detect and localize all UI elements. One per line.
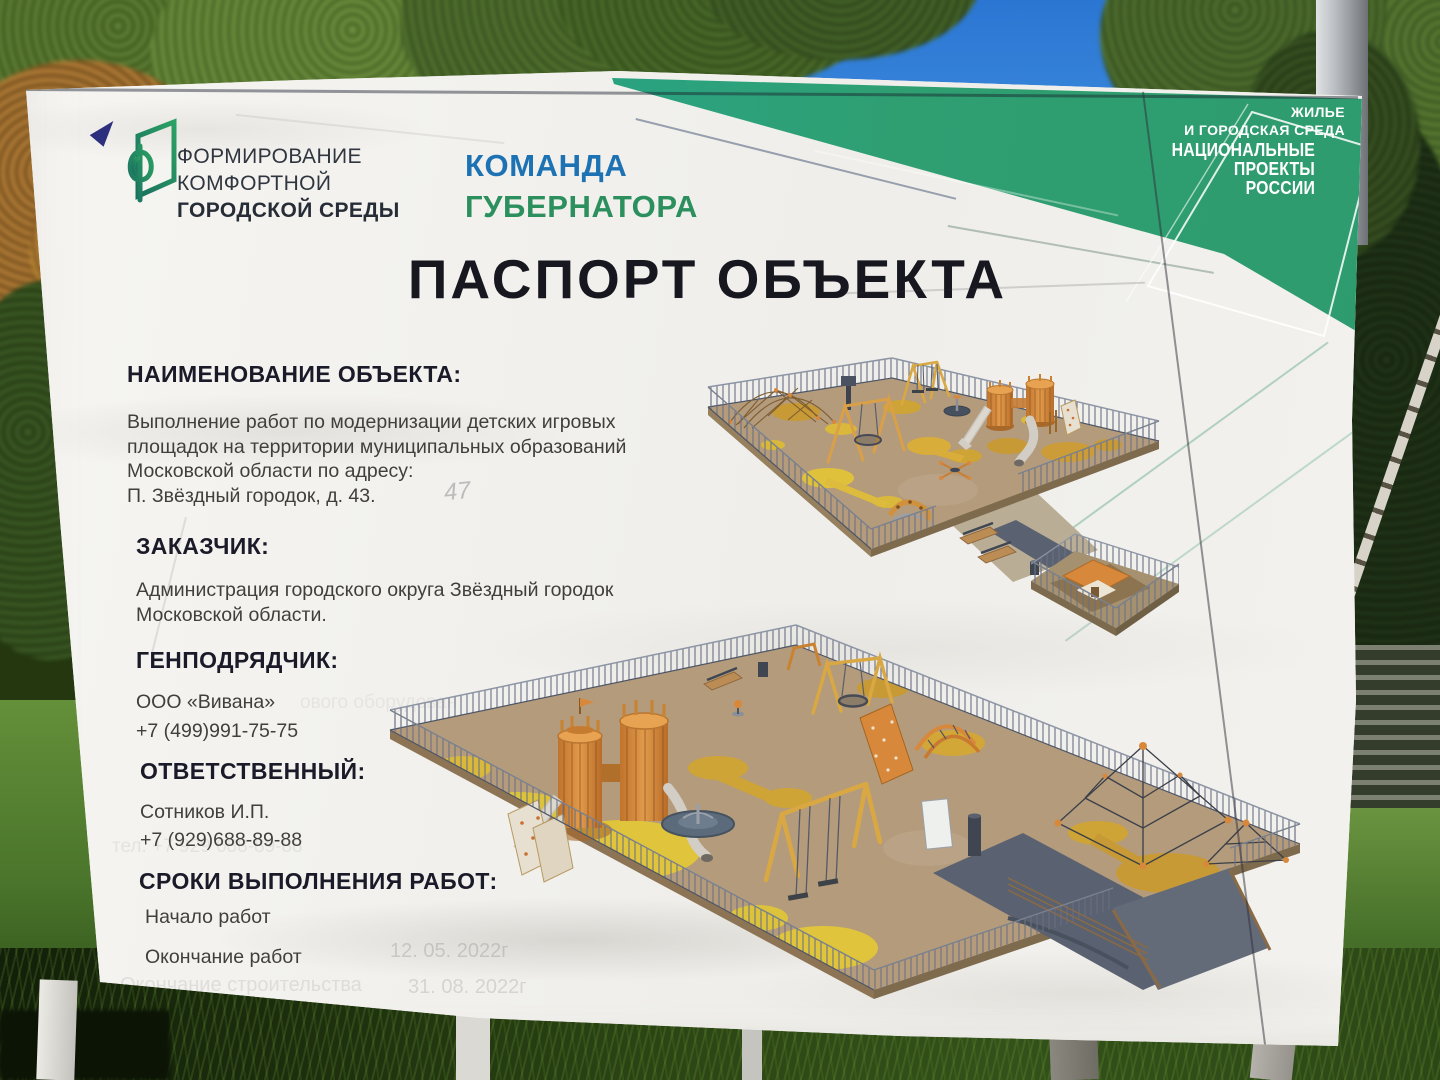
logo-line: ГОРОДСКОЙ СРЕДЫ	[177, 197, 400, 224]
brand-line: РОССИИ	[1111, 179, 1315, 198]
section-body-contractor: ООО «Вивана» +7 (499)991-75-75	[136, 688, 298, 746]
body-line: П. Звёздный городок, д. 43.	[127, 484, 626, 509]
governor-team-lockup: КОМАНДА ГУБЕРНАТОРА	[465, 145, 698, 227]
body-line: площадок на территории муниципальных обр…	[127, 435, 626, 460]
logo-line: ФОРМИРОВАНИЕ	[177, 143, 400, 170]
program-logo-text: ФОРМИРОВАНИЕ КОМФОРТНОЙ ГОРОДСКОЙ СРЕДЫ	[177, 143, 400, 224]
section-body-object-name: Выполнение работ по модернизации детских…	[127, 410, 626, 508]
handwritten-house-number: 47	[443, 477, 472, 508]
shadow-corner	[0, 1010, 170, 1080]
schedule-start-label: Начало работ	[145, 906, 271, 929]
body-line: Администрация городского округа Звёздный…	[136, 578, 613, 603]
body-line: Выполнение работ по модернизации детских…	[127, 410, 626, 435]
sign-leg	[742, 1026, 762, 1080]
sign-leg	[456, 1014, 490, 1080]
section-heading-customer: ЗАКАЗЧИК:	[136, 533, 269, 560]
body-line: Сотников И.П.	[140, 798, 302, 826]
torn-sticker-fragment	[90, 115, 121, 146]
sector-line: И ГОРОДСКАЯ СРЕДА	[1085, 121, 1345, 139]
section-heading-object-name: НАИМЕНОВАНИЕ ОБЪЕКТА:	[127, 361, 461, 388]
playground-render-bottom	[368, 618, 1338, 1036]
section-heading-contractor: ГЕНПОДРЯДЧИК:	[136, 647, 338, 674]
section-heading-responsible: ОТВЕТСТВЕННЫЙ:	[140, 758, 366, 785]
sign-leg	[36, 979, 77, 1080]
brand-line: НАЦИОНАЛЬНЫЕ	[1111, 141, 1315, 160]
fkgs-logo-mark	[118, 118, 180, 213]
body-line: Московской области по адресу:	[127, 459, 626, 484]
schedule-end-label: Окончание работ	[145, 946, 302, 969]
brand-line: ПРОЕКТЫ	[1111, 160, 1315, 179]
page-title: ПАСПОРТ ОБЪЕКТА	[350, 247, 1065, 311]
contractor-phone: +7 (499)991-75-75	[136, 717, 298, 746]
logo-line: КОМФОРТНОЙ	[177, 170, 400, 197]
national-projects-wordmark: НАЦИОНАЛЬНЫЕ ПРОЕКТЫ РОССИИ	[1111, 141, 1315, 198]
park-photo-scene: ФОРМИРОВАНИЕ КОМФОРТНОЙ ГОРОДСКОЙ СРЕДЫ …	[0, 0, 1440, 1080]
construction-passport-billboard: ФОРМИРОВАНИЕ КОМФОРТНОЙ ГОРОДСКОЙ СРЕДЫ …	[0, 0, 1440, 1080]
national-project-sector: ЖИЛЬЕ И ГОРОДСКАЯ СРЕДА	[1085, 103, 1345, 139]
governor-team-line: КОМАНДА	[465, 145, 698, 186]
ghost-phone: тел. +7 929 688-89-88	[112, 836, 303, 858]
poster-crease-line	[236, 114, 505, 144]
body-line: ООО «Вивана»	[136, 688, 298, 717]
governor-team-line: ГУБЕРНАТОРА	[465, 186, 698, 227]
sector-line: ЖИЛЬЕ	[1085, 103, 1345, 121]
